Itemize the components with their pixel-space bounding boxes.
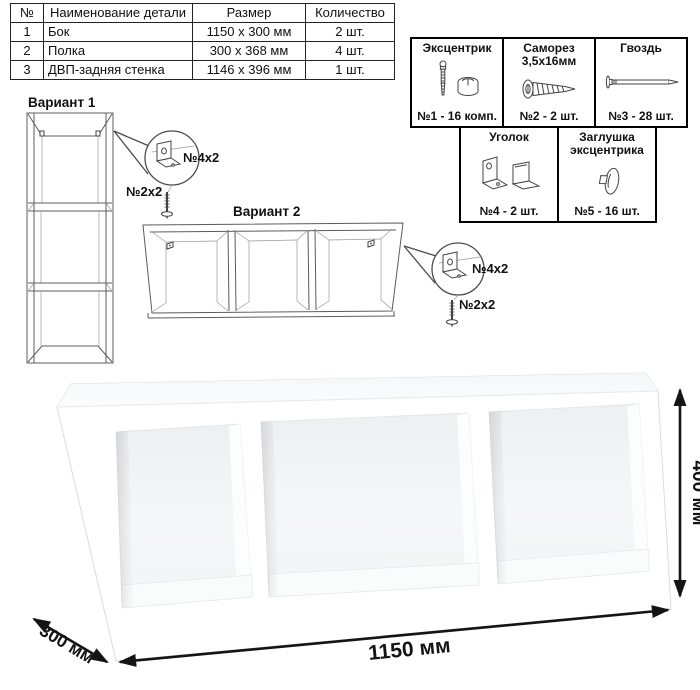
hardware-item-screw: Саморез 3,5х16мм №2 - 2 шт. (502, 37, 596, 128)
variant1-bracket-label: №4х2 (183, 150, 219, 165)
cam-and-dowel-icon (429, 55, 485, 109)
header-qty: Количество (306, 4, 395, 23)
variant1-cabinet-outline (27, 113, 113, 363)
table-row: 2 Полка 300 x 368 мм 4 шт. (11, 42, 395, 61)
hardware-item-cam: Эксцентрик (410, 37, 504, 128)
parts-table-header-row: № Наименование детали Размер Количество (11, 4, 395, 23)
variant2-drawing (140, 218, 530, 348)
hardware-title: Заглушка эксцентрика (559, 128, 655, 158)
header-num: № (11, 4, 44, 23)
variant2-bracket-label: №4х2 (472, 261, 508, 276)
cam-cap-icon (585, 158, 629, 204)
hardware-title: Саморез 3,5х16мм (504, 39, 594, 69)
screw-detail-icon (162, 192, 173, 219)
hardware-item-bracket: Уголок №4 - 2 шт. (459, 126, 559, 223)
shelf-3d-render: 400 мм 1150 мм 300 мм (25, 360, 700, 690)
screw-icon (517, 69, 581, 109)
nail-icon (601, 55, 681, 109)
part-qty: 2 шт. (306, 23, 395, 42)
part-size: 1150 x 300 мм (193, 23, 306, 42)
part-name: ДВП-задняя стенка (44, 61, 193, 80)
bracket-mark (368, 240, 374, 247)
hardware-count: №1 - 16 комп. (417, 109, 497, 126)
variant1-detail-callout (114, 131, 199, 219)
part-num: 3 (11, 61, 44, 80)
depth-dimension-label: 300 мм (36, 620, 98, 668)
part-num: 2 (11, 42, 44, 61)
parts-table: № Наименование детали Размер Количество … (10, 3, 395, 80)
corner-bracket-icon (476, 144, 542, 204)
hardware-title: Гвоздь (618, 39, 664, 55)
part-name: Полка (44, 42, 193, 61)
length-dimension-label: 1150 мм (367, 634, 451, 665)
header-name: Наименование детали (44, 4, 193, 23)
part-size: 1146 x 396 мм (193, 61, 306, 80)
table-row: 3 ДВП-задняя стенка 1146 x 396 мм 1 шт. (11, 61, 395, 80)
page: { "parts_table": { "headers": {"num": "№… (0, 0, 700, 690)
screw-detail-icon (447, 300, 458, 327)
hardware-count: №2 - 2 шт. (520, 109, 579, 126)
hardware-item-cap: Заглушка эксцентрика №5 - 16 шт. (557, 126, 657, 223)
part-qty: 4 шт. (306, 42, 395, 61)
variant2-screw-label: №2х2 (459, 297, 495, 312)
part-name: Бок (44, 23, 193, 42)
header-size: Размер (193, 4, 306, 23)
hardware-count: №3 - 28 шт. (608, 109, 674, 126)
hardware-title: Уголок (487, 128, 531, 144)
part-num: 1 (11, 23, 44, 42)
table-row: 1 Бок 1150 x 300 мм 2 шт. (11, 23, 395, 42)
variant2-detail-callout (404, 243, 484, 327)
hardware-item-nail: Гвоздь №3 - 28 шт. (594, 37, 688, 128)
hardware-panel-bottom-row: Уголок №4 - 2 шт. Заглушка эксцентрика (459, 126, 657, 223)
hardware-panel-top-row: Эксцентрик (410, 37, 688, 128)
variant2-cabinet-outline (143, 223, 403, 318)
variant1-screw-label: №2х2 (126, 184, 162, 199)
hardware-title: Эксцентрик (421, 39, 494, 55)
height-dimension-label: 400 мм (688, 460, 700, 525)
part-size: 300 x 368 мм (193, 42, 306, 61)
part-qty: 1 шт. (306, 61, 395, 80)
variant2-title: Вариант 2 (233, 204, 300, 219)
bracket-mark (167, 242, 173, 249)
hardware-count: №5 - 16 шт. (574, 204, 640, 221)
